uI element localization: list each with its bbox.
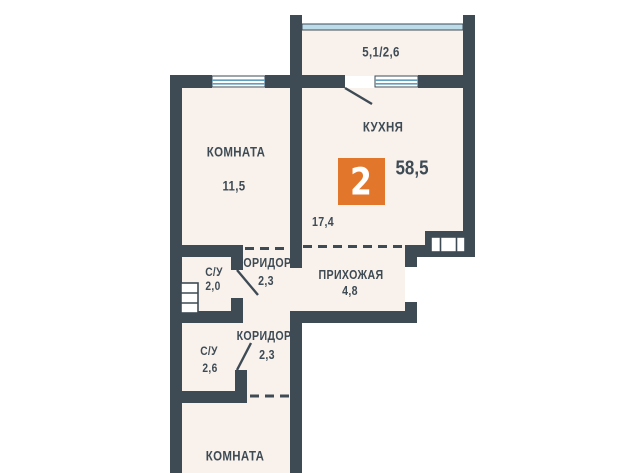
room-top-area-label: 11,5 bbox=[222, 179, 245, 194]
wall-room-bottom-top bbox=[170, 391, 247, 403]
bathroom-upper-name-label: С/У bbox=[205, 265, 223, 279]
corridor-upper-name-label: КОРИДОР bbox=[237, 256, 292, 270]
hallway-name-label: ПРИХОЖАЯ bbox=[319, 268, 384, 282]
balcony-area-label: 5,1/2,6 bbox=[362, 45, 399, 60]
total-area-label: 58,5 bbox=[395, 158, 428, 181]
window-room-frame bbox=[212, 76, 265, 87]
corridor-upper-area-label: 2,3 bbox=[258, 274, 274, 288]
vent-bathroom-icon bbox=[181, 283, 198, 313]
bathroom-upper-area-label: 2,0 bbox=[205, 279, 220, 293]
wall-left-outer bbox=[170, 75, 182, 473]
vent-kitchen-box bbox=[431, 237, 465, 252]
corridor-lower-area-label: 2,3 bbox=[259, 348, 275, 362]
kitchen-name-label: КУХНЯ bbox=[363, 120, 403, 135]
wall-entry-stub-top bbox=[405, 245, 417, 267]
wall-room-kitchen-divider bbox=[290, 15, 302, 268]
wall-room-top-left bbox=[170, 75, 212, 88]
wall-bathroom-upper-right-b bbox=[231, 298, 243, 323]
floor-plan-drawing bbox=[0, 0, 640, 473]
wall-hallway-bottom bbox=[290, 311, 417, 323]
corridor-lower-name-label: КОРИДОР bbox=[237, 329, 292, 343]
balcony-glazing-icon bbox=[302, 24, 463, 30]
bathroom-lower-name-label: С/У bbox=[200, 344, 218, 358]
room-bottom-name-label: КОМНАТА bbox=[206, 449, 264, 464]
vent-bathroom-box bbox=[181, 283, 198, 313]
window-kitchen-frame bbox=[375, 76, 418, 87]
vent-kitchen-icon bbox=[431, 237, 465, 252]
bathroom-lower-area-label: 2,6 bbox=[202, 361, 217, 375]
wall-right-outer bbox=[463, 15, 475, 257]
hallway-area-label: 4,8 bbox=[342, 284, 358, 298]
window-room-icon bbox=[212, 76, 265, 87]
unit-type-number: 2 bbox=[350, 161, 372, 204]
room-top-name-label: КОМНАТА bbox=[207, 145, 265, 160]
window-kitchen-icon bbox=[375, 76, 418, 87]
kitchen-area-label: 17,4 bbox=[312, 215, 334, 229]
wall-kitchen-top-right bbox=[418, 75, 463, 88]
floor-plan: 5,1/2,6 КОМНАТА 11,5 КУХНЯ 17,4 2 58,5 К… bbox=[0, 0, 640, 473]
wall-lower-right bbox=[290, 311, 302, 473]
wall-kitchen-top-left bbox=[302, 75, 345, 88]
